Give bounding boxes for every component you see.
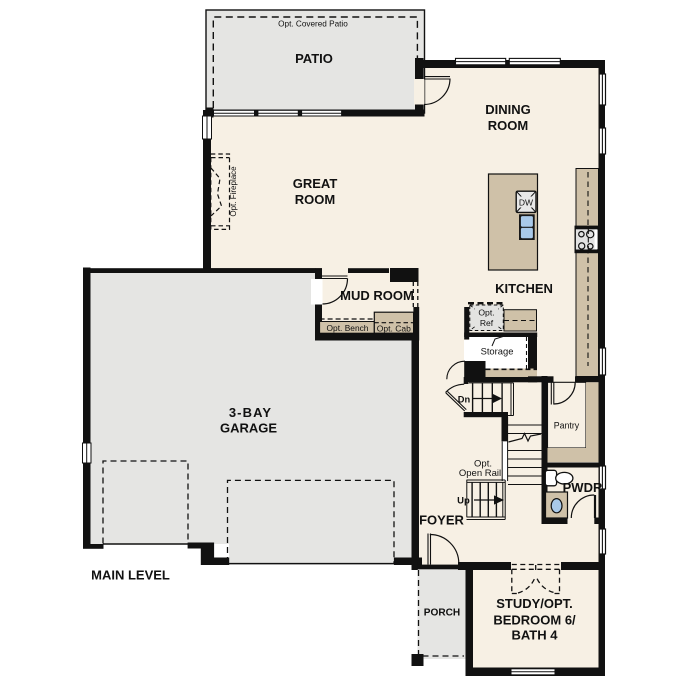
svg-text:Opt. Fireplace: Opt. Fireplace bbox=[229, 166, 238, 217]
svg-text:Open Rail: Open Rail bbox=[459, 468, 501, 479]
svg-text:Pantry: Pantry bbox=[554, 421, 580, 431]
svg-text:PORCH: PORCH bbox=[424, 608, 460, 619]
svg-text:GARAGE: GARAGE bbox=[220, 421, 277, 436]
svg-text:Opt. Covered Patio: Opt. Covered Patio bbox=[278, 20, 348, 29]
svg-text:FOYER: FOYER bbox=[419, 513, 464, 528]
svg-text:Storage: Storage bbox=[481, 346, 514, 357]
svg-text:STUDY/OPT.: STUDY/OPT. bbox=[496, 596, 573, 611]
svg-text:Up: Up bbox=[457, 496, 470, 507]
svg-text:Opt. Bench: Opt. Bench bbox=[327, 323, 369, 333]
svg-text:BEDROOM 6/: BEDROOM 6/ bbox=[493, 613, 576, 628]
svg-text:KITCHEN: KITCHEN bbox=[495, 281, 553, 296]
svg-text:ROOM: ROOM bbox=[488, 118, 528, 133]
svg-text:MAIN LEVEL: MAIN LEVEL bbox=[91, 568, 170, 583]
svg-text:MUD ROOM: MUD ROOM bbox=[340, 288, 414, 303]
svg-text:Opt.: Opt. bbox=[478, 308, 494, 318]
svg-text:BATH 4: BATH 4 bbox=[512, 628, 559, 643]
svg-text:GREAT: GREAT bbox=[293, 176, 338, 191]
svg-text:ROOM: ROOM bbox=[295, 192, 335, 207]
svg-text:DINING: DINING bbox=[485, 102, 531, 117]
svg-text:DW: DW bbox=[519, 197, 533, 207]
svg-text:Ref: Ref bbox=[480, 318, 494, 328]
svg-text:PWDR: PWDR bbox=[563, 480, 603, 495]
svg-text:Opt. Cab: Opt. Cab bbox=[377, 323, 411, 333]
svg-text:PATIO: PATIO bbox=[295, 51, 333, 66]
svg-text:3-BAY: 3-BAY bbox=[229, 405, 272, 420]
